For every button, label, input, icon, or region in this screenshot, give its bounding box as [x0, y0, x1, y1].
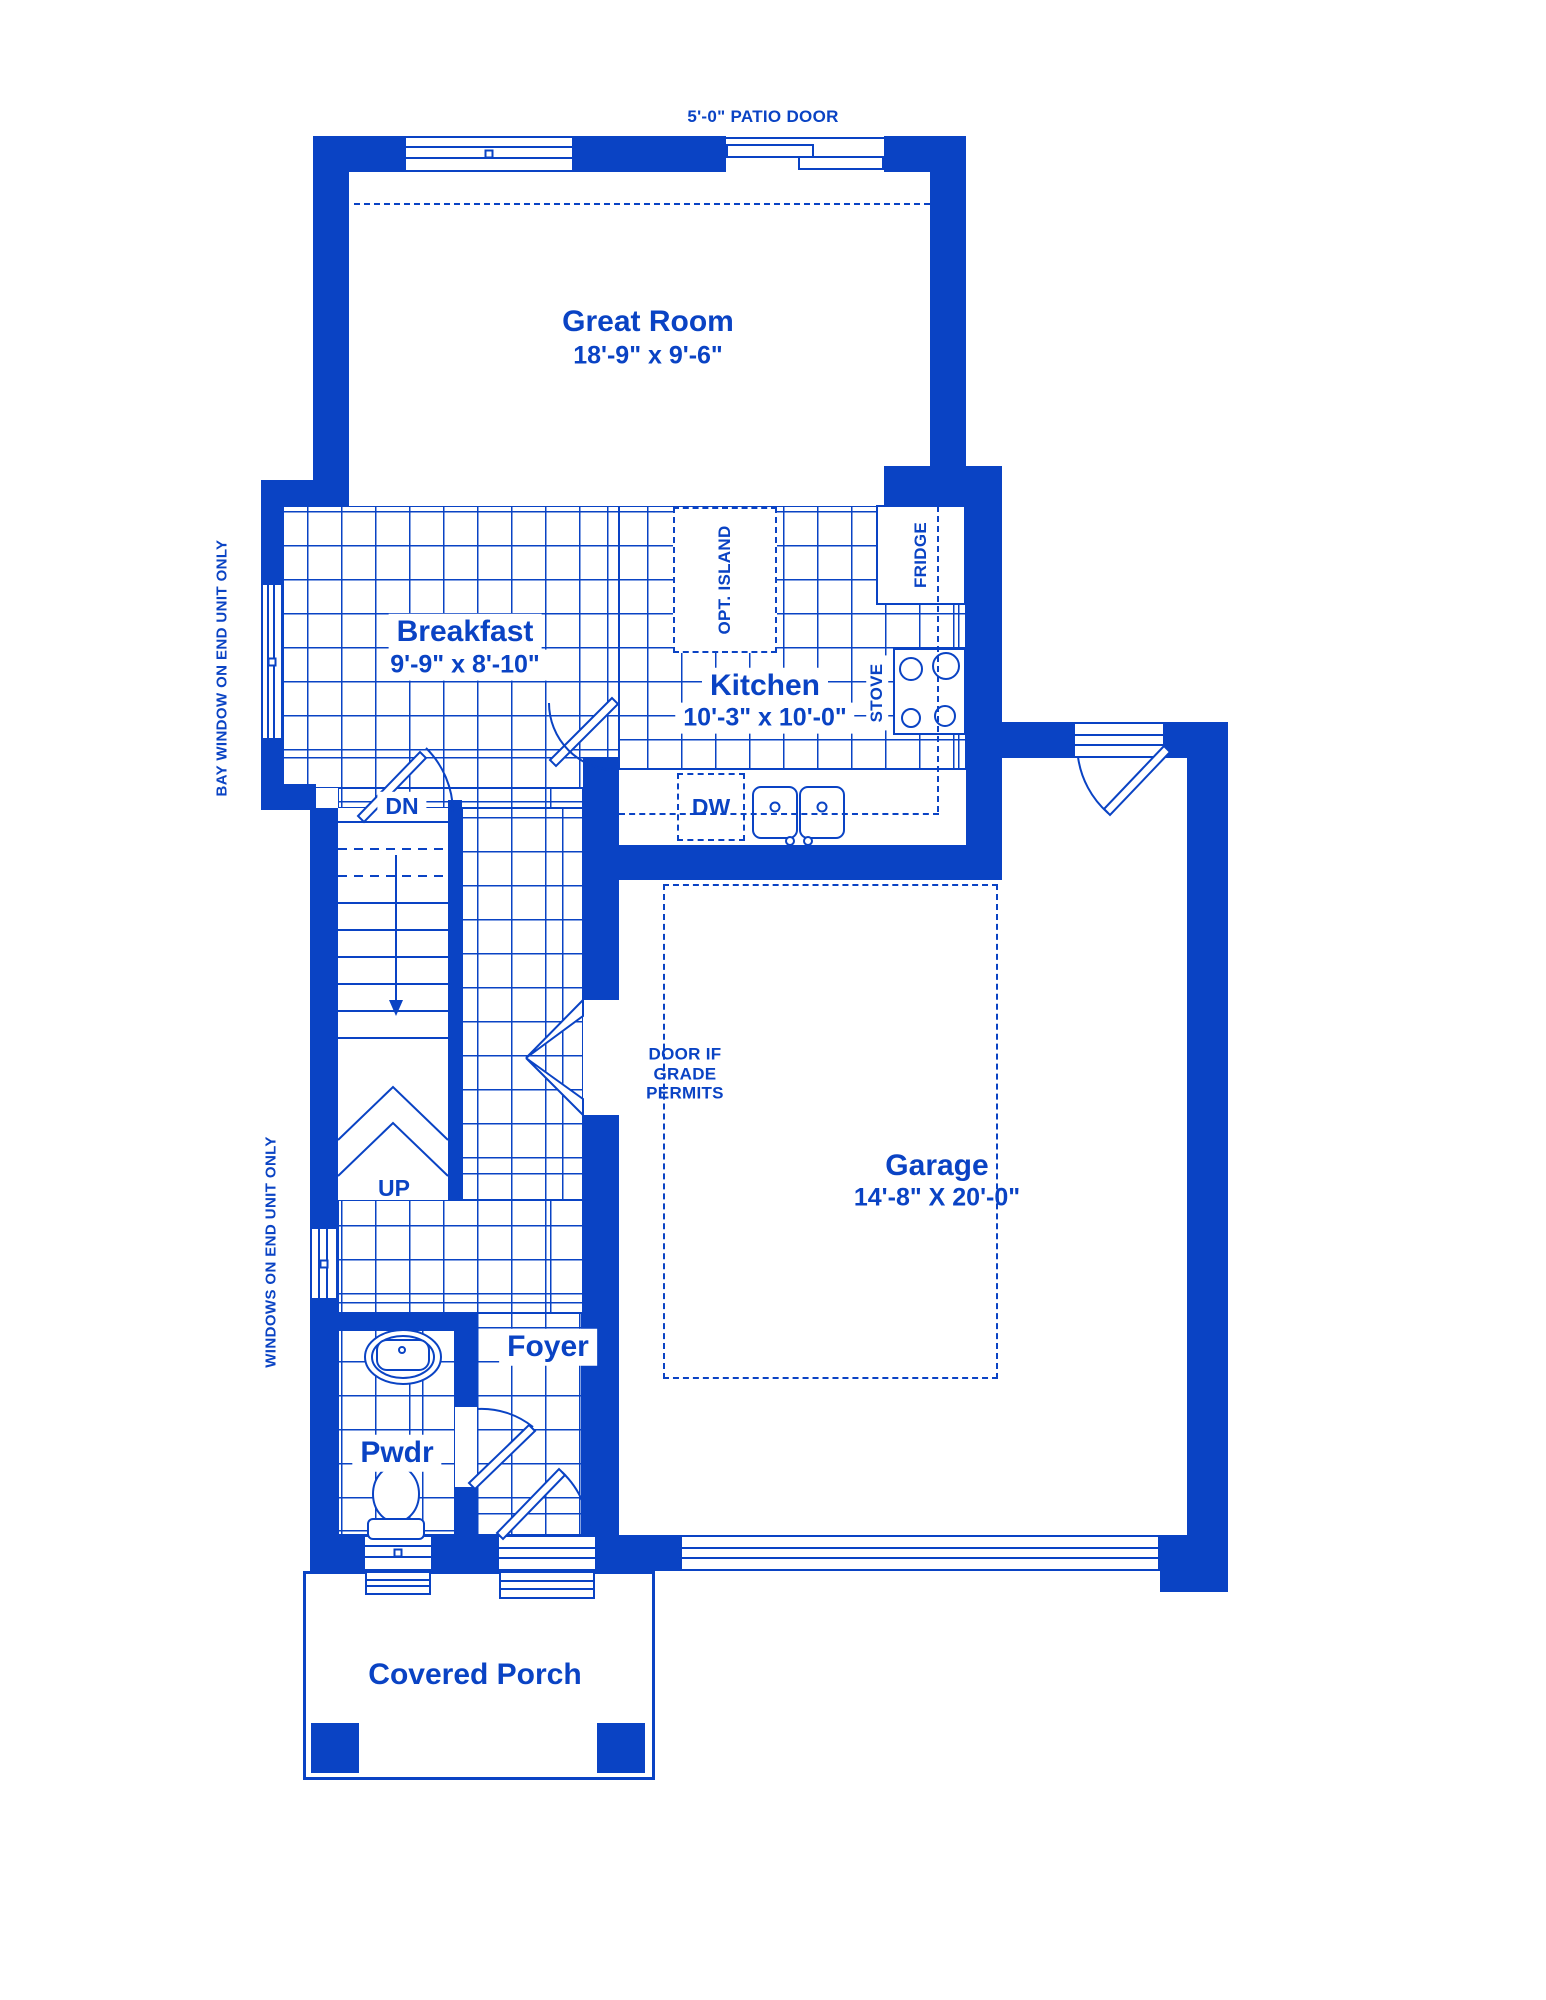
- wall-foyer-garage-upper: [583, 758, 619, 1000]
- wall-front-b: [433, 1535, 497, 1571]
- fridge-label: FRIDGE: [911, 522, 931, 588]
- patio-door-panel-b: [798, 156, 884, 170]
- wall-left-lower: [310, 1300, 338, 1572]
- hall-floor-tiles: [462, 808, 583, 1200]
- kitchen-dims: 10'-3" x 10'-0": [675, 703, 854, 734]
- covered-porch-label: Covered Porch: [368, 1658, 581, 1693]
- foyer-label: Foyer: [499, 1329, 597, 1366]
- floorplan: 5'-0" PATIO DOOR Great Room 18'-9" x 9'-…: [0, 0, 1546, 2000]
- opt-island-label: OPT. ISLAND: [715, 525, 735, 634]
- stairwell: [338, 808, 448, 1200]
- garage-label: Garage: [885, 1149, 988, 1184]
- stairs-dn-label: DN: [377, 792, 426, 820]
- porch-post-right: [597, 1723, 645, 1773]
- bay-window: [261, 583, 283, 740]
- greatroom-window: [404, 136, 574, 172]
- garage-slab-dashed-outline: [663, 884, 998, 1379]
- wall-garage-top-west: [1002, 722, 1073, 758]
- wall-pwdr-top: [338, 1313, 477, 1330]
- pwdr-floor-tiles: [338, 1330, 455, 1535]
- porch-post-left: [311, 1723, 359, 1773]
- stove-label: STOVE: [866, 656, 888, 731]
- dishwasher-label: DW: [692, 794, 730, 820]
- wall-pwdr-right-upper: [455, 1330, 477, 1407]
- foyer-floor-tiles: [338, 1200, 583, 1313]
- front-door-opening: [497, 1535, 597, 1571]
- stove-box: [893, 648, 966, 735]
- counter-guide-vertical: [937, 506, 939, 812]
- wall-bay-step-bottom: [261, 784, 316, 810]
- patio-door-track: [726, 137, 884, 139]
- greatroom-ceiling-dashed-line: [354, 203, 930, 205]
- kitchen-counter: [619, 770, 966, 845]
- garage-dims: 14'-8" X 20'-0": [854, 1184, 1020, 1213]
- breakfast-label: Breakfast: [389, 614, 542, 651]
- wall-front-c: [597, 1535, 680, 1571]
- wall-kitchen-garage-divider: [619, 845, 1002, 880]
- pwdr-window-sill: [365, 1571, 431, 1595]
- garage-door-opening: [680, 1535, 1160, 1571]
- garage-side-door-arc: [1078, 757, 1108, 813]
- wall-greatroom-right: [930, 136, 966, 466]
- garage-side-door-opening: [1073, 722, 1165, 758]
- wall-bay-upper: [261, 480, 283, 583]
- pwdr-front-window: [363, 1535, 433, 1571]
- end-unit-window: [310, 1227, 338, 1300]
- counter-edge-line: [619, 768, 966, 770]
- wall-kitchen-right: [966, 466, 1002, 880]
- front-door-step: [499, 1571, 595, 1599]
- kitchen-label: Kitchen: [702, 668, 828, 705]
- great-room-dims: 18'-9" x 9'-6": [573, 342, 723, 371]
- wall-pwdr-right-lower: [455, 1487, 477, 1535]
- wall-left-mid: [310, 808, 338, 1227]
- pwdr-label: Pwdr: [352, 1435, 441, 1472]
- wall-stair-stringer: [448, 800, 462, 1200]
- stairs-up-label: UP: [378, 1175, 410, 1201]
- bay-window-note: BAY WINDOW ON END UNIT ONLY: [213, 540, 230, 797]
- counter-guide-horizontal: [619, 813, 939, 815]
- wall-garage-right: [1187, 722, 1228, 1592]
- great-room-label: Great Room: [562, 305, 734, 340]
- patio-door-label: 5'-0" PATIO DOOR: [687, 107, 838, 127]
- door-grade-note: DOOR IF GRADE PERMITS: [646, 1045, 724, 1104]
- wall-top-mid: [574, 136, 726, 172]
- wall-foyer-garage-lower: [583, 1115, 619, 1535]
- wall-front-garage-corner: [1160, 1535, 1228, 1592]
- breakfast-dims: 9'-9" x 8'-10": [382, 650, 548, 681]
- wall-greatroom-left: [313, 136, 349, 506]
- windows-note: WINDOWS ON END UNIT ONLY: [262, 1136, 279, 1368]
